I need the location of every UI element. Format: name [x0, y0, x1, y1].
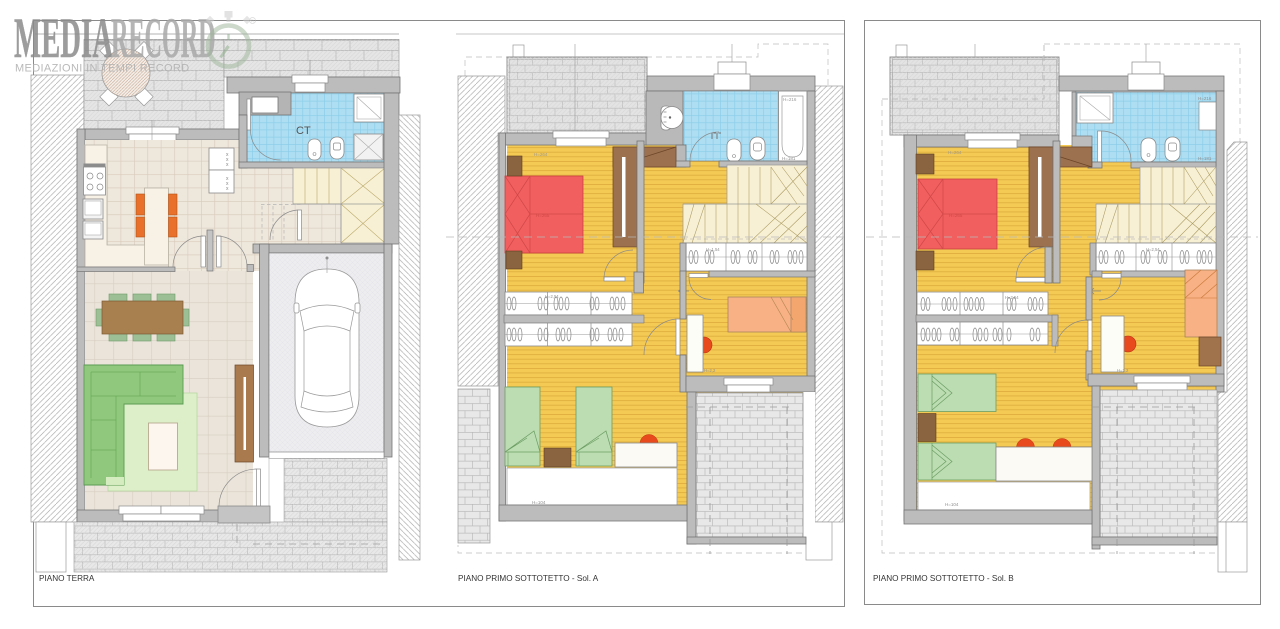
- svg-text:H=2,54: H=2,54: [1005, 295, 1019, 300]
- svg-text:H=104: H=104: [532, 500, 546, 505]
- svg-text:H=104: H=104: [945, 502, 959, 507]
- svg-text:H=181: H=181: [1198, 156, 1212, 161]
- svg-text:MEDIAZIONI IN TEMPI RECORD: MEDIAZIONI IN TEMPI RECORD: [15, 63, 190, 75]
- svg-text:H=2,2: H=2,2: [704, 368, 716, 373]
- svg-text:H=1,54: H=1,54: [706, 247, 720, 252]
- svg-text:RECORD: RECORD: [111, 6, 216, 70]
- svg-text:H=2,54: H=2,54: [1146, 247, 1160, 252]
- svg-text:MEDIA: MEDIA: [14, 5, 113, 70]
- svg-text:CT: CT: [296, 125, 311, 137]
- svg-text:H=264: H=264: [534, 152, 548, 157]
- svg-text:H=265: H=265: [949, 213, 963, 218]
- svg-text:PIANO PRIMO SOTTOTETTO - Sol.: PIANO PRIMO SOTTOTETTO - Sol. B: [873, 574, 1014, 583]
- svg-text:H=2,2: H=2,2: [1117, 368, 1129, 373]
- svg-text:H=216: H=216: [783, 97, 797, 102]
- svg-text:H=265: H=265: [536, 213, 550, 218]
- svg-text:PIANO PRIMO SOTTOTETTO - Sol.: PIANO PRIMO SOTTOTETTO - Sol. A: [458, 574, 599, 583]
- svg-text:H=216: H=216: [1198, 96, 1212, 101]
- svg-text:H=181: H=181: [782, 156, 796, 161]
- svg-text:PIANO TERRA: PIANO TERRA: [39, 574, 95, 583]
- svg-text:H=2,54: H=2,54: [545, 294, 559, 299]
- svg-text:H=264: H=264: [948, 150, 962, 155]
